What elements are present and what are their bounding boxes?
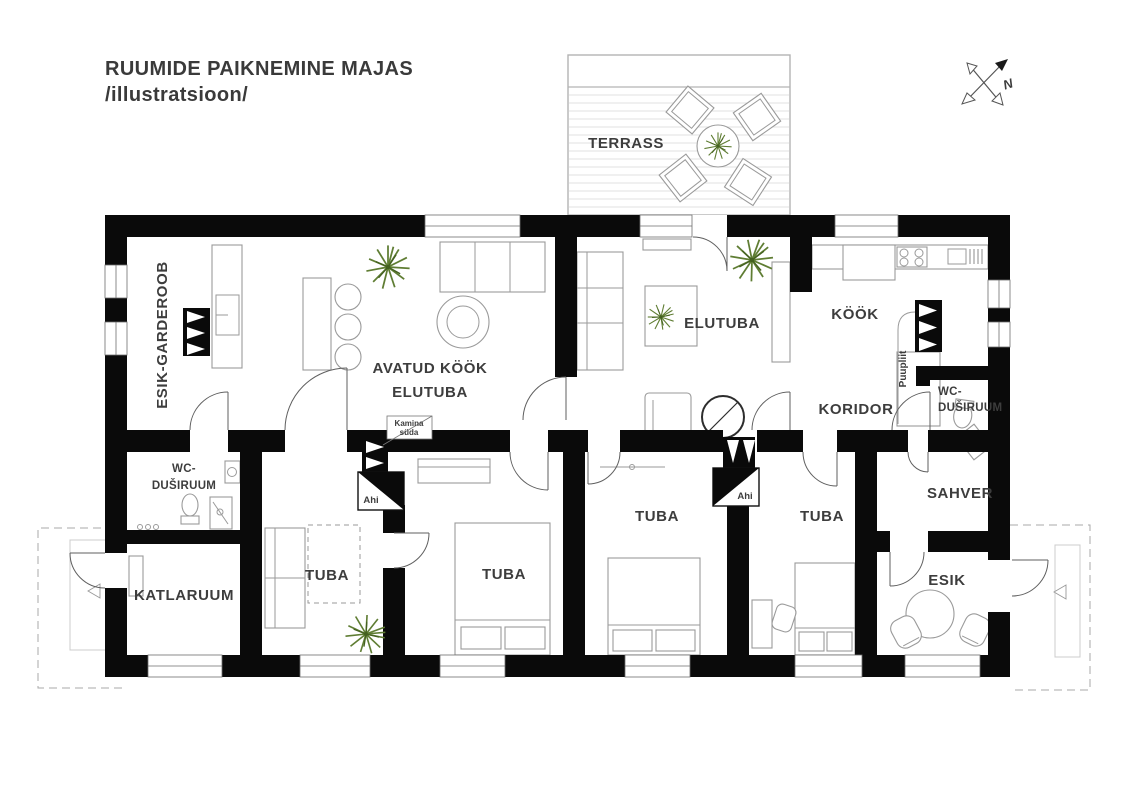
window [148, 655, 222, 677]
annotation-ahi-left: Ahi [363, 495, 378, 506]
north-compass-icon: N [962, 59, 1015, 105]
bed [795, 563, 855, 655]
window [988, 280, 1010, 308]
window [625, 655, 690, 677]
room-label-kook: KÖÖK [831, 306, 878, 323]
window [640, 215, 692, 237]
room-label-elutuba: ELUTUBA [684, 315, 760, 332]
room-label-katlaruum: KATLARUUM [134, 587, 234, 604]
tall-cabinet [772, 262, 790, 362]
room-label-wc-right-1: WC- [938, 386, 962, 398]
bed [455, 523, 550, 655]
room-label-wc-left-2: DUŠIRUUM [152, 479, 216, 492]
bar-stool [335, 344, 361, 370]
desk [752, 600, 772, 648]
window [795, 655, 862, 677]
room-label-wc-left-1: WC- [172, 463, 196, 475]
room-label-avatud-kook-2: ELUTUBA [392, 384, 468, 401]
room-label-tuba-3: TUBA [635, 508, 679, 525]
toilet-icon [181, 494, 199, 524]
room-label-sahver: SAHVER [927, 485, 993, 502]
sofa [577, 252, 623, 370]
kitchen-island [303, 278, 331, 370]
room-label-tuba-4: TUBA [800, 508, 844, 525]
window [988, 322, 1010, 347]
door-arc [1012, 560, 1048, 596]
page-subtitle: /illustratsioon/ [105, 84, 248, 106]
annotation-puupliit: Puupliit [898, 350, 909, 387]
sofa [440, 242, 545, 292]
annotation-kamina-suda-2: süda [400, 428, 419, 437]
room-label-tuba-2: TUBA [482, 566, 526, 583]
room-label-esik-garderoob: ESIK-GARDEROOB [154, 261, 171, 409]
room-label-koridor: KORIDOR [818, 401, 893, 418]
window [425, 215, 520, 237]
room-label-avatud-kook-1: AVATUD KÖÖK [373, 360, 488, 377]
window [905, 655, 980, 677]
annotation-kamina-suda-1: Kamina [395, 419, 424, 428]
puupliit-stove-symbol [915, 300, 942, 352]
north-label: N [1001, 75, 1015, 92]
window [300, 655, 370, 677]
room-label-terrass: TERRASS [588, 135, 664, 152]
window [835, 215, 898, 237]
room-label-tuba-1: TUBA [305, 567, 349, 584]
annotation-ahi-right: Ahi [737, 491, 752, 502]
window [440, 655, 505, 677]
bar-stool [335, 314, 361, 340]
bar-stool [335, 284, 361, 310]
round-chair [437, 296, 489, 348]
porch-right-dashed [1010, 525, 1090, 690]
room-label-esik: ESIK [928, 572, 965, 589]
bed [608, 558, 700, 655]
window-bench [643, 239, 691, 250]
door-arc [70, 553, 105, 588]
window-bench [418, 459, 490, 483]
fridge [843, 245, 895, 280]
window [105, 322, 127, 355]
terrace: TERRASS [568, 55, 790, 215]
room-label-wc-right-2: DUŠIRUUM [938, 401, 1002, 414]
page-title: RUUMIDE PAIKNEMINE MAJAS [105, 58, 413, 80]
window [105, 265, 127, 298]
wardrobe-symbol [183, 308, 210, 356]
entry-arrow-icon [1054, 585, 1066, 599]
floor-plan: RUUMIDE PAIKNEMINE MAJAS /illustratsioon… [0, 0, 1131, 800]
